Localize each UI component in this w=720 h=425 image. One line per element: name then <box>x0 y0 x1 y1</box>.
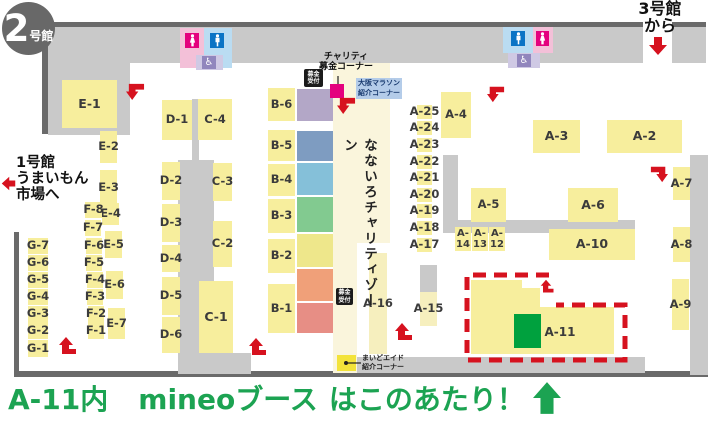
booth-b-1: B-1 <box>268 284 295 333</box>
charity-color-block-6 <box>297 269 333 301</box>
wheelchair-restroom-icon: ♿ <box>202 56 216 69</box>
corridor-zone <box>420 265 437 293</box>
caption-area: A-11内 <box>8 378 108 418</box>
booth-e-6: E-6 <box>106 271 123 299</box>
floor-map: E-1E-2E-3E-4E-5E-6E-7F-8F-7F-6F-5F-4F-3F… <box>0 0 720 377</box>
osaka-marathon-corner-badge: 大阪マラソン 紹介コーナー <box>356 78 402 99</box>
booth-e-4: E-4 <box>102 203 119 225</box>
booth-d-2: D-2 <box>162 162 180 200</box>
booth-a-25: A-25 <box>417 105 432 119</box>
booth-g-7: G-7 <box>28 238 48 254</box>
booth-a-11-label: A-11 <box>540 325 580 339</box>
booth-a-6: A-6 <box>568 188 618 222</box>
booth-a-11-area <box>471 280 614 354</box>
booth-f-3: F-3 <box>87 289 103 305</box>
booth-a-13: A-13 <box>472 227 488 251</box>
wheelchair-restroom-icon: ♿ <box>517 54 531 67</box>
route-arrow-c1-icon <box>249 338 266 355</box>
hall1-exit-label: 1号館 うまいもん 市場へ <box>16 156 96 204</box>
route-arrow-a16-icon <box>395 323 412 340</box>
booth-a-2: A-2 <box>607 120 682 153</box>
booth-g-3: G-3 <box>28 306 48 322</box>
route-arrow-g1-icon <box>59 337 76 354</box>
booth-e-7: E-7 <box>108 308 125 339</box>
booth-b-6: B-6 <box>268 88 295 121</box>
booth-d-3: D-3 <box>162 204 180 242</box>
caption-brand: mineoブース <box>138 378 318 418</box>
maido-aid-marker <box>337 355 356 371</box>
booth-a-24: A-24 <box>417 121 432 135</box>
corridor-zone <box>690 155 708 375</box>
booth-d-6: D-6 <box>162 317 180 353</box>
booth-f-6: F-6 <box>86 238 102 254</box>
wall-segment <box>14 232 19 373</box>
donation-desk-badge-top: 募金 受付 <box>304 69 323 87</box>
booth-d-5: D-5 <box>162 277 180 315</box>
charity-color-block-2 <box>297 131 333 161</box>
booth-b-4: B-4 <box>268 164 295 196</box>
booth-f-5: F-5 <box>86 255 102 271</box>
building-2-badge: 2 号館 <box>2 2 55 55</box>
building-suffix: 号館 <box>29 27 53 44</box>
hall3-entrance-label: 3号館 から <box>622 1 698 35</box>
caption-up-arrow-icon <box>533 382 561 414</box>
booth-a-4: A-4 <box>441 92 471 138</box>
booth-c-1: C-1 <box>199 281 233 353</box>
charity-color-block-7 <box>297 303 333 333</box>
female-restroom-icon <box>536 31 549 46</box>
route-arrow-hall1-icon <box>2 177 16 191</box>
charity-color-block-4 <box>297 197 333 232</box>
booth-f-2: F-2 <box>88 306 104 322</box>
booth-e-5: E-5 <box>105 231 122 258</box>
booth-a-7: A-7 <box>673 167 690 200</box>
charity-color-block-5 <box>297 234 333 267</box>
booth-g-1: G-1 <box>28 340 48 357</box>
female-restroom-icon <box>185 33 199 48</box>
male-restroom-icon <box>210 33 224 48</box>
booth-a-20: A-20 <box>417 188 432 202</box>
booth-a-8: A-8 <box>673 227 690 262</box>
booth-a-3: A-3 <box>533 120 580 153</box>
building-number: 2 <box>4 10 30 47</box>
booth-b-2: B-2 <box>268 239 295 273</box>
booth-a-14: A-14 <box>455 227 471 251</box>
booth-g-2: G-2 <box>28 322 48 339</box>
mineo-booth-marker <box>514 314 541 348</box>
booth-a-18: A-18 <box>417 221 432 235</box>
booth-e-2: E-2 <box>100 131 117 163</box>
booth-a-21: A-21 <box>417 171 432 185</box>
booth-c-3: C-3 <box>213 163 232 201</box>
booth-a-19: A-19 <box>417 204 432 218</box>
booth-a-5: A-5 <box>471 188 506 222</box>
booth-f-8: F-8 <box>85 202 102 218</box>
booth-a-15: A-15 <box>420 292 437 326</box>
booth-a-22: A-22 <box>417 155 432 169</box>
booth-f-1: F-1 <box>88 322 104 339</box>
route-arrow-right-top-icon <box>487 87 504 102</box>
booth-a-10: A-10 <box>549 229 635 260</box>
booth-g-5: G-5 <box>28 272 48 288</box>
caption-rest: はこのあたり！ <box>329 378 525 418</box>
booth-a-17: A-17 <box>417 238 432 252</box>
booth-a-9: A-9 <box>672 279 689 330</box>
mineo-booth-caption: A-11内 mineoブース はこのあたり！ <box>8 376 561 420</box>
booth-g-6: G-6 <box>28 255 48 271</box>
booth-e-3: E-3 <box>100 170 117 205</box>
a-11-highlight-dashed-box <box>467 275 625 360</box>
booth-f-4: F-4 <box>87 272 103 288</box>
booth-b-5: B-5 <box>268 130 295 161</box>
booth-g-4: G-4 <box>28 289 48 305</box>
booth-d-4: D-4 <box>162 245 180 272</box>
charity-color-block-1 <box>297 89 333 121</box>
route-arrow-hall3-icon <box>649 37 667 55</box>
route-arrow-a7-icon <box>651 167 668 182</box>
booth-d-1: D-1 <box>162 100 192 140</box>
booth-c-2: C-2 <box>213 221 232 267</box>
charity-color-block-3 <box>297 163 333 195</box>
booth-b-3: B-3 <box>268 199 295 233</box>
corridor-zone <box>178 353 251 374</box>
booth-e-1: E-1 <box>62 80 117 128</box>
booth-a-12: A-12 <box>489 227 505 251</box>
male-restroom-icon <box>511 31 525 46</box>
booth-a-23: A-23 <box>417 138 432 152</box>
route-arrow-a11-icon <box>541 280 554 293</box>
booth-c-4: C-4 <box>198 99 232 140</box>
corridor-zone <box>443 155 458 233</box>
nanairo-charity-zone-label: なないろチャリティゾーン <box>339 138 379 318</box>
booth-f-7: F-7 <box>85 220 101 236</box>
maido-aid-corner-label: まいどエイド 紹介コーナー <box>362 354 404 372</box>
